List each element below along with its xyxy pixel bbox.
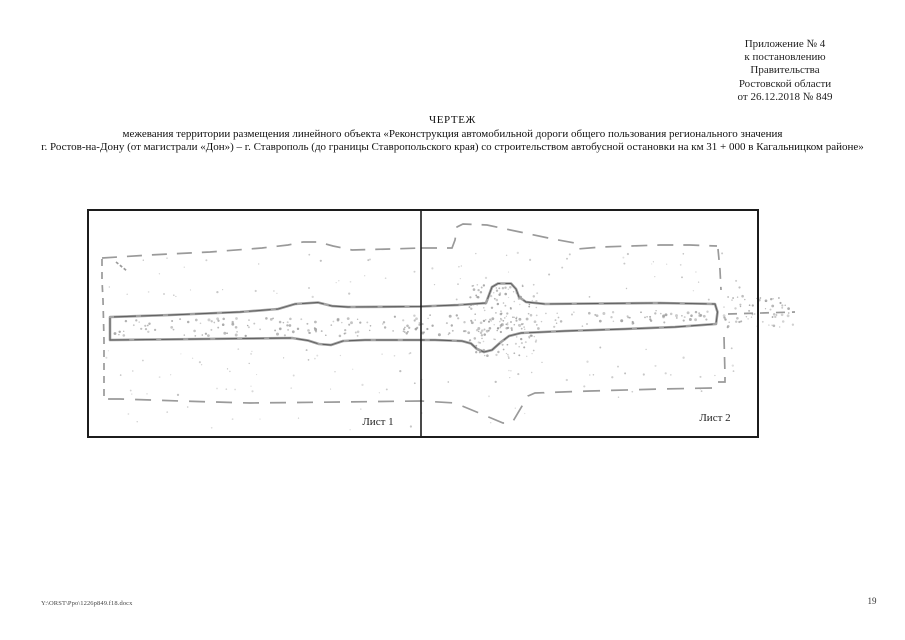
- corridor-continuation-dashes: [728, 312, 795, 314]
- page-number: 19: [862, 596, 882, 606]
- document-page: Приложение № 4 к постановлению Правитель…: [0, 0, 905, 640]
- boundary-bottom-left: [107, 399, 421, 403]
- boundary-right-upper: [718, 249, 721, 290]
- boundary-hatch-mark: [116, 262, 127, 271]
- boundary-top-right: [421, 224, 717, 249]
- boundary-right-lower: [712, 337, 725, 382]
- sheet-1-label: Лист 1: [343, 416, 413, 428]
- boundary-left: [102, 258, 104, 396]
- road-corridor-outline-dark: [110, 284, 718, 353]
- sheet-2-label: Лист 2: [680, 412, 750, 424]
- boundary-group: [102, 224, 795, 423]
- file-path-footer: Y:\ORST\Ppo\1226p849.f18.docx: [41, 600, 133, 607]
- road-corridor-outline-gray: [110, 284, 718, 353]
- survey-drawing: [0, 0, 905, 640]
- boundary-bottom-right: [421, 388, 712, 423]
- boundary-top-left: [102, 242, 421, 258]
